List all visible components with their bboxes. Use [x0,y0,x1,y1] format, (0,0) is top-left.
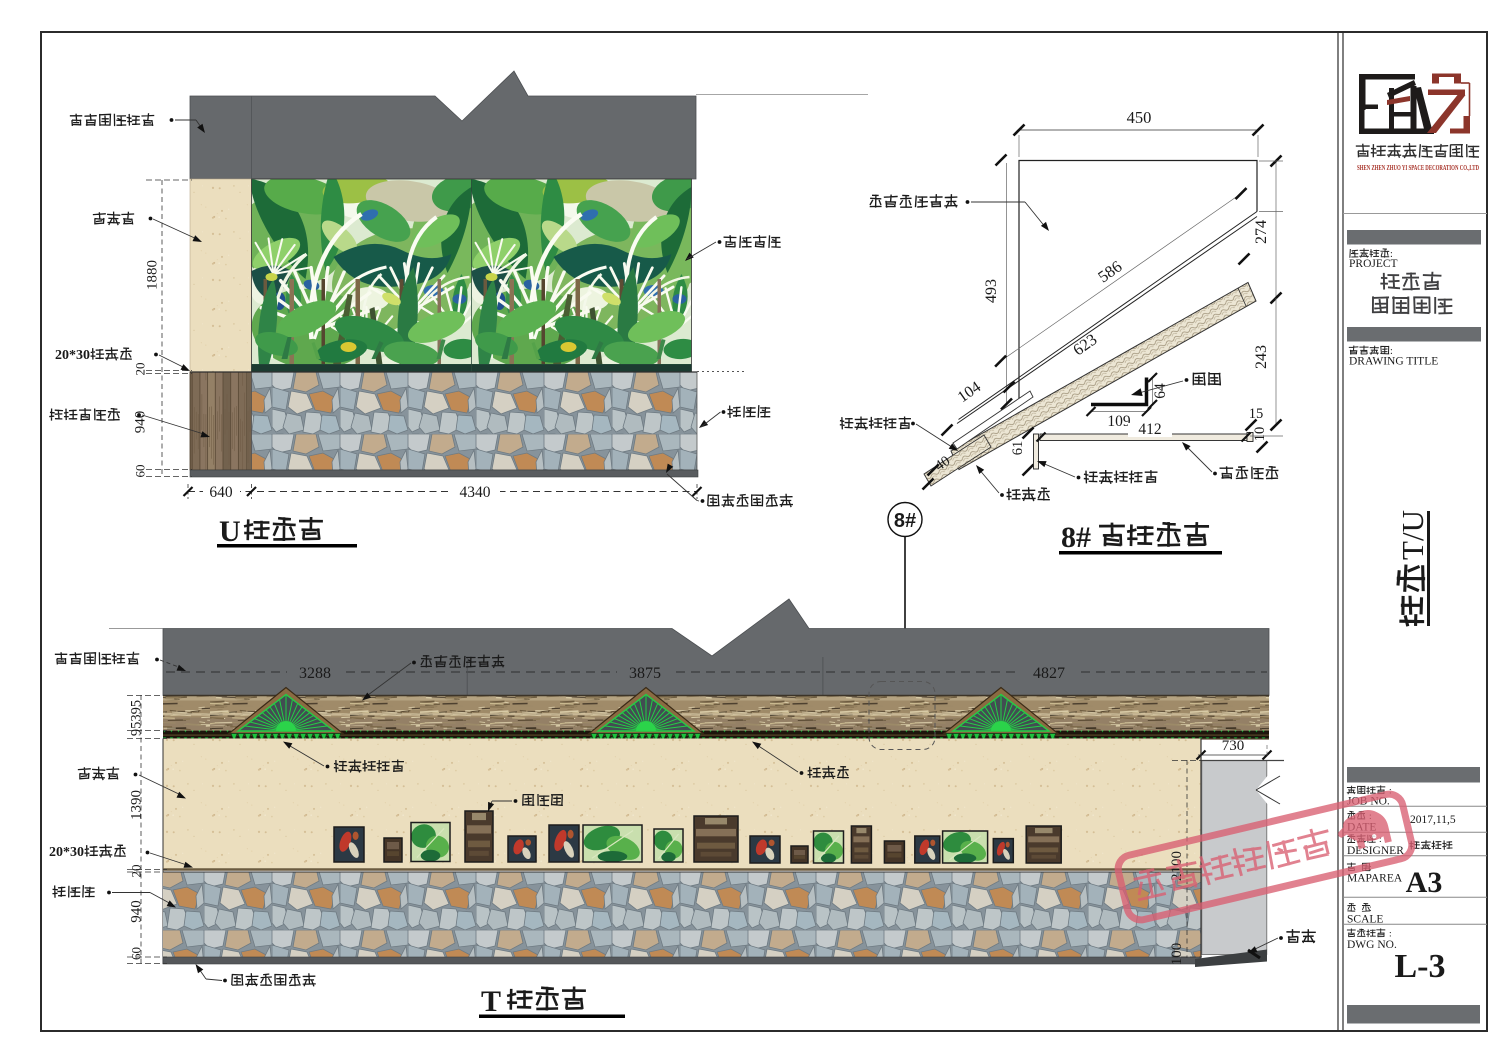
svg-text:8#: 8# [1061,521,1091,554]
svg-text:1880: 1880 [145,260,161,290]
svg-text:SCALE: SCALE [1347,914,1383,926]
svg-text:8#: 8# [894,510,916,532]
svg-text:T/U: T/U [1395,510,1430,560]
svg-text:PROJECT: PROJECT [1349,258,1398,270]
svg-text:DWG NO.: DWG NO. [1347,939,1397,951]
svg-text:730: 730 [1222,738,1245,754]
svg-text:MAPAREA: MAPAREA [1347,873,1403,885]
svg-text:DRAWING TITLE: DRAWING TITLE [1349,356,1438,368]
svg-text::: : [1369,904,1372,914]
svg-text:104: 104 [955,378,984,406]
svg-text:2017,11,5: 2017,11,5 [1410,814,1456,826]
svg-text:412: 412 [1138,421,1161,438]
svg-text:4827: 4827 [1033,665,1065,682]
svg-text:95395: 95395 [129,700,145,736]
svg-text:1390: 1390 [129,790,145,820]
svg-text:640: 640 [209,484,233,501]
svg-text:3875: 3875 [629,665,661,682]
svg-text:243: 243 [1253,345,1270,369]
svg-text:3288: 3288 [299,665,331,682]
svg-text:61: 61 [1010,441,1026,456]
svg-text:586: 586 [1094,257,1125,287]
svg-text:623: 623 [1069,330,1100,360]
svg-text:10: 10 [1252,427,1268,442]
svg-text:450: 450 [1127,108,1152,127]
svg-text:274: 274 [1253,220,1270,244]
svg-text:60: 60 [129,947,144,960]
svg-text:20*30: 20*30 [55,348,90,363]
svg-text:SHEN ZHEN ZHUO YI SPACE DECORA: SHEN ZHEN ZHUO YI SPACE DECORATION CO.,L… [1357,163,1479,172]
svg-text:U: U [219,515,241,548]
svg-text:20*30: 20*30 [49,845,84,860]
svg-text:A3: A3 [1406,866,1443,899]
svg-text:940: 940 [129,900,145,923]
svg-text:L-3: L-3 [1395,948,1446,985]
svg-text:100: 100 [1169,943,1185,966]
svg-text::: : [1389,930,1392,940]
svg-text:493: 493 [983,279,1000,303]
svg-text:4340: 4340 [460,484,491,501]
svg-text:60: 60 [133,465,148,478]
svg-text:20: 20 [129,865,144,878]
svg-text:T: T [481,985,501,1018]
svg-text:20: 20 [133,363,148,376]
svg-text:109: 109 [1107,413,1131,430]
